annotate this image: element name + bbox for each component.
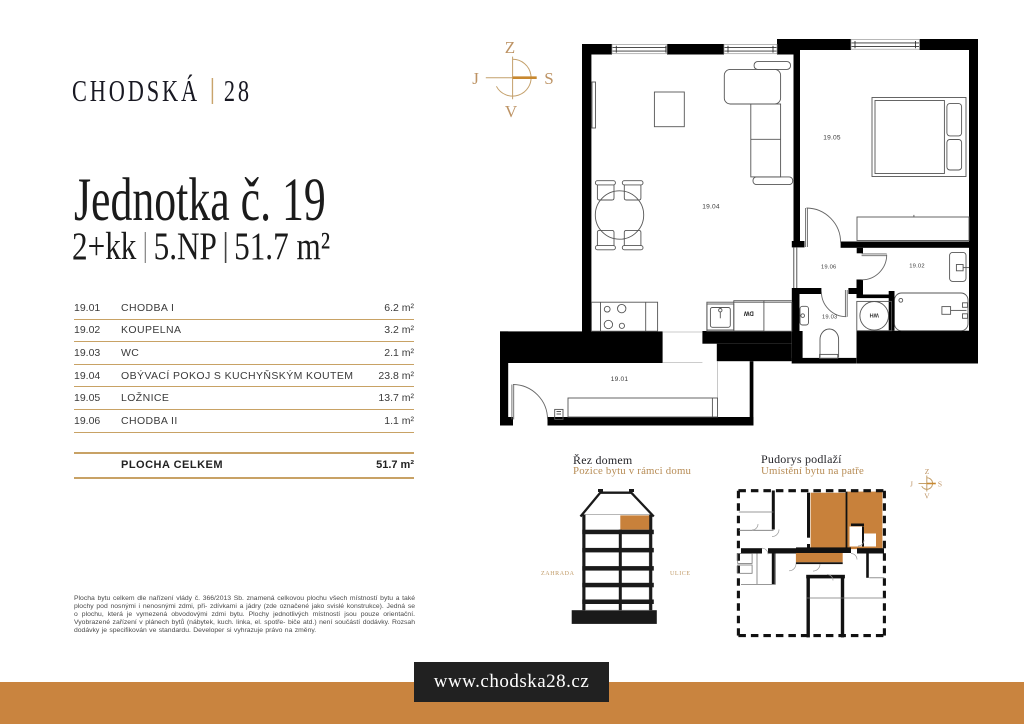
svg-text:19.01: 19.01 bbox=[611, 376, 629, 383]
svg-text:V: V bbox=[505, 102, 518, 121]
svg-text:J: J bbox=[910, 480, 913, 489]
svg-text:DW: DW bbox=[743, 310, 753, 316]
svg-text:S: S bbox=[938, 480, 942, 489]
svg-text:S: S bbox=[544, 69, 553, 88]
svg-text:Z: Z bbox=[925, 467, 930, 476]
svg-text:19.06: 19.06 bbox=[821, 264, 837, 270]
svg-text:19.03: 19.03 bbox=[822, 314, 838, 320]
svg-text:19.05: 19.05 bbox=[823, 135, 841, 142]
svg-text:Z: Z bbox=[505, 38, 515, 57]
svg-text:V: V bbox=[924, 492, 930, 501]
svg-text:19.04: 19.04 bbox=[702, 204, 720, 211]
svg-text:19.02: 19.02 bbox=[909, 263, 925, 269]
svg-text:WH: WH bbox=[870, 312, 879, 318]
svg-text:J: J bbox=[472, 69, 479, 88]
